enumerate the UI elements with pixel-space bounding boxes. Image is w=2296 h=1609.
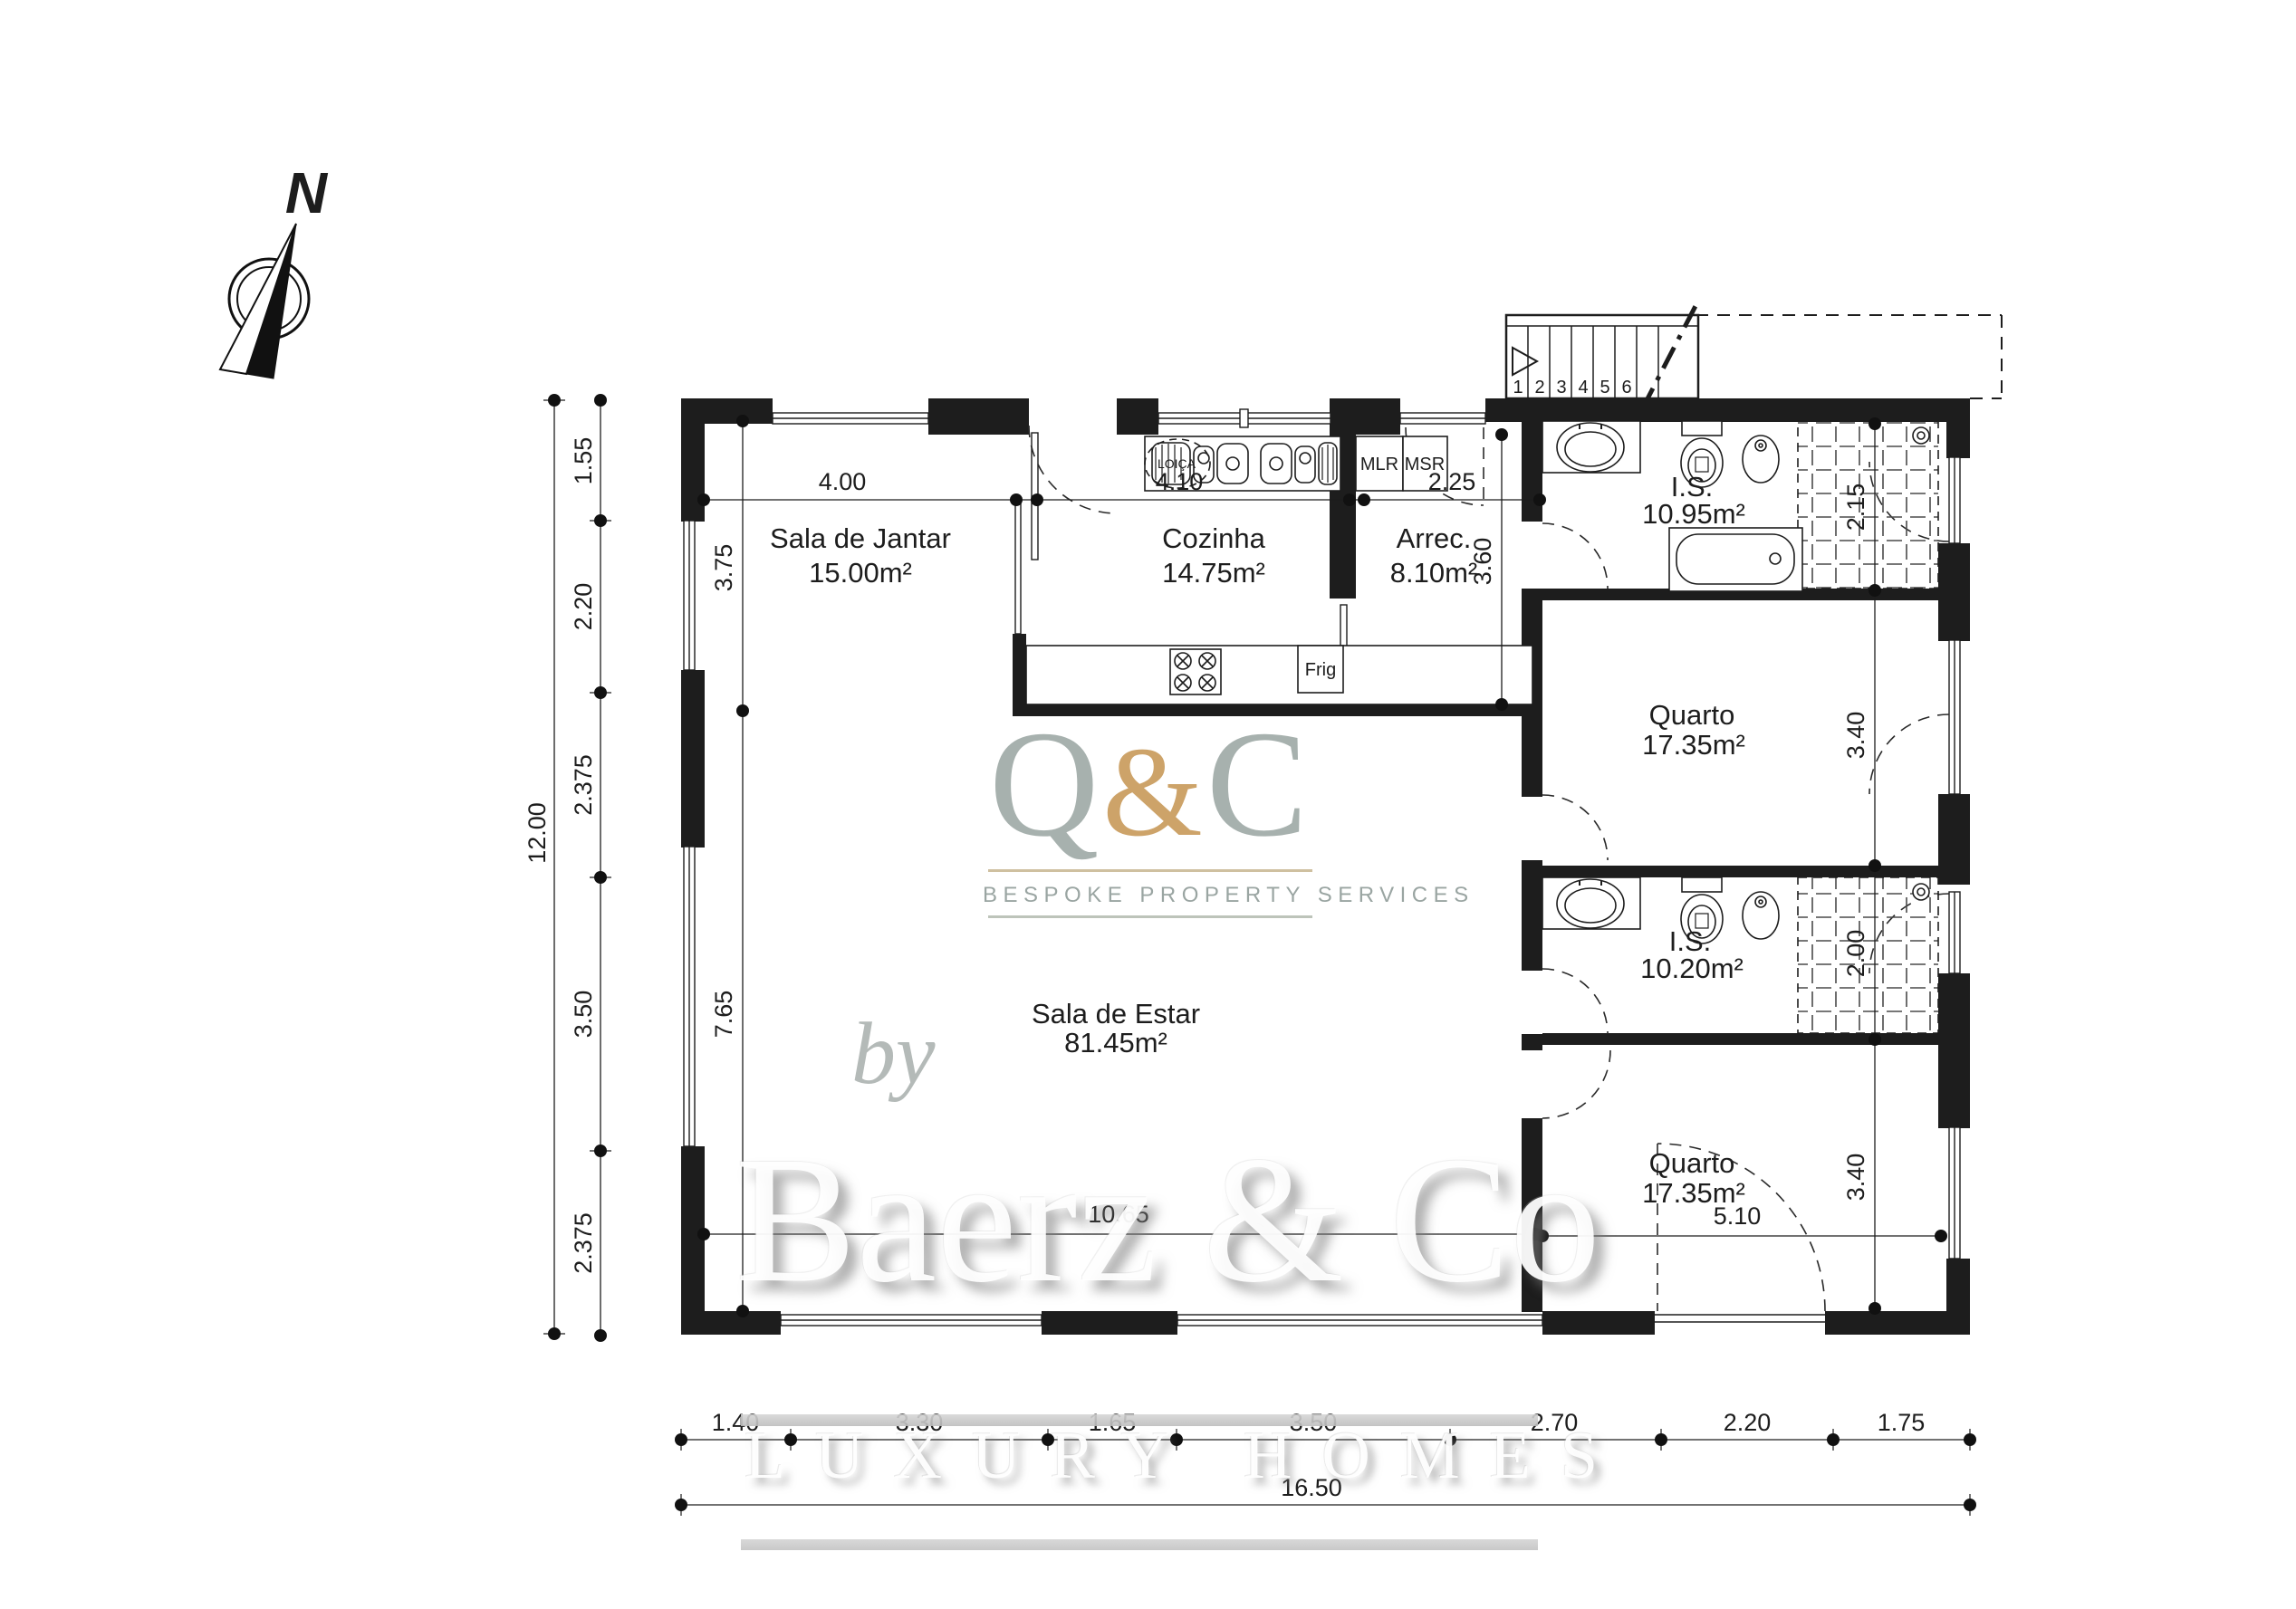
dim-left-2: 2.20 [570,583,597,631]
dim-bottom-6: 2.20 [1724,1409,1772,1436]
stairs-dashed-outline [1696,315,2002,398]
room-area-quarto1: 17.35m² [1642,729,1745,761]
watermark-bar-bottom [741,1539,1538,1550]
label-fridge: Frig [1305,660,1336,680]
dim-left-3: 2.375 [570,754,597,816]
toilet-icon [1682,421,1722,436]
dim-left-total: 12.00 [524,802,551,864]
room-label-sala-de-jantar: Sala de Jantar [770,522,951,554]
dim-quarto1-height: 3.40 [1842,712,1869,760]
room-area-is2: 10.20m² [1640,953,1744,984]
qc-logo: Q&C BESPOKE PROPERTY SERVICES [983,708,1318,918]
dim-cozinha-width: 4.10 [1156,468,1204,495]
qc-logo-ampersand: & [1102,720,1206,863]
watermark-footer: LUXURY HOMES [745,1418,1628,1495]
room-area-sala-de-estar: 81.45m² [1064,1027,1167,1058]
qc-logo-c: C [1206,700,1311,868]
watermark-brand: Baerz & Co [735,1130,1600,1311]
label-washer: MLR [1360,455,1398,474]
compass-icon [220,224,309,378]
stair-tread-3: 3 [1556,378,1566,397]
stair-tread-6: 6 [1621,378,1631,397]
dim-jantar-width: 4.00 [819,468,867,495]
dim-bottom-7: 1.75 [1878,1409,1926,1436]
room-label-cozinha: Cozinha [1162,522,1265,554]
stair-tread-1: 1 [1513,378,1523,397]
room-label-quarto1: Quarto [1649,699,1735,731]
qc-logo-letters: Q&C [983,708,1318,860]
dim-quarto2-width: 5.10 [1714,1202,1762,1230]
room-area-arrec: 8.10m² [1390,557,1477,589]
qc-logo-tagline: BESPOKE PROPERTY SERVICES [983,883,1318,908]
dim-is1-height: 2.15 [1842,484,1869,532]
qc-logo-rule-bottom [988,915,1312,918]
room-area-is1: 10.95m² [1642,498,1745,530]
stair-tread-4: 4 [1578,378,1588,397]
dim-is2-height: 2.00 [1842,930,1869,978]
dim-quarto2-height: 3.40 [1842,1154,1869,1202]
qc-logo-rule-top [988,869,1312,872]
dim-estar-height: 7.65 [710,991,737,1039]
room-label-quarto2: Quarto [1649,1147,1735,1179]
dim-left-4: 3.50 [570,991,597,1039]
qc-logo-q: Q [989,700,1102,868]
dim-jantar-height: 3.75 [710,544,737,592]
room-area-cozinha: 14.75m² [1162,557,1265,589]
room-label-arrec: Arrec. [1397,522,1472,554]
compass-north-label: N [285,160,329,225]
dim-left-1: 1.55 [570,437,597,485]
toilet-icon [1682,877,1722,892]
stair-tread-2: 2 [1534,378,1544,397]
room-label-sala-de-estar: Sala de Estar [1032,998,1200,1030]
dim-arrec-height: 3.60 [1469,538,1496,586]
dim-arrec-width: 2.25 [1428,468,1476,495]
floor-plan-page: N 1 2 3 4 5 6 [0,0,2296,1609]
room-area-sala-de-jantar: 15.00m² [809,557,912,589]
stair-tread-5: 5 [1600,378,1609,397]
watermark-by: by [851,1003,936,1105]
dim-left-5: 2.375 [570,1212,597,1274]
